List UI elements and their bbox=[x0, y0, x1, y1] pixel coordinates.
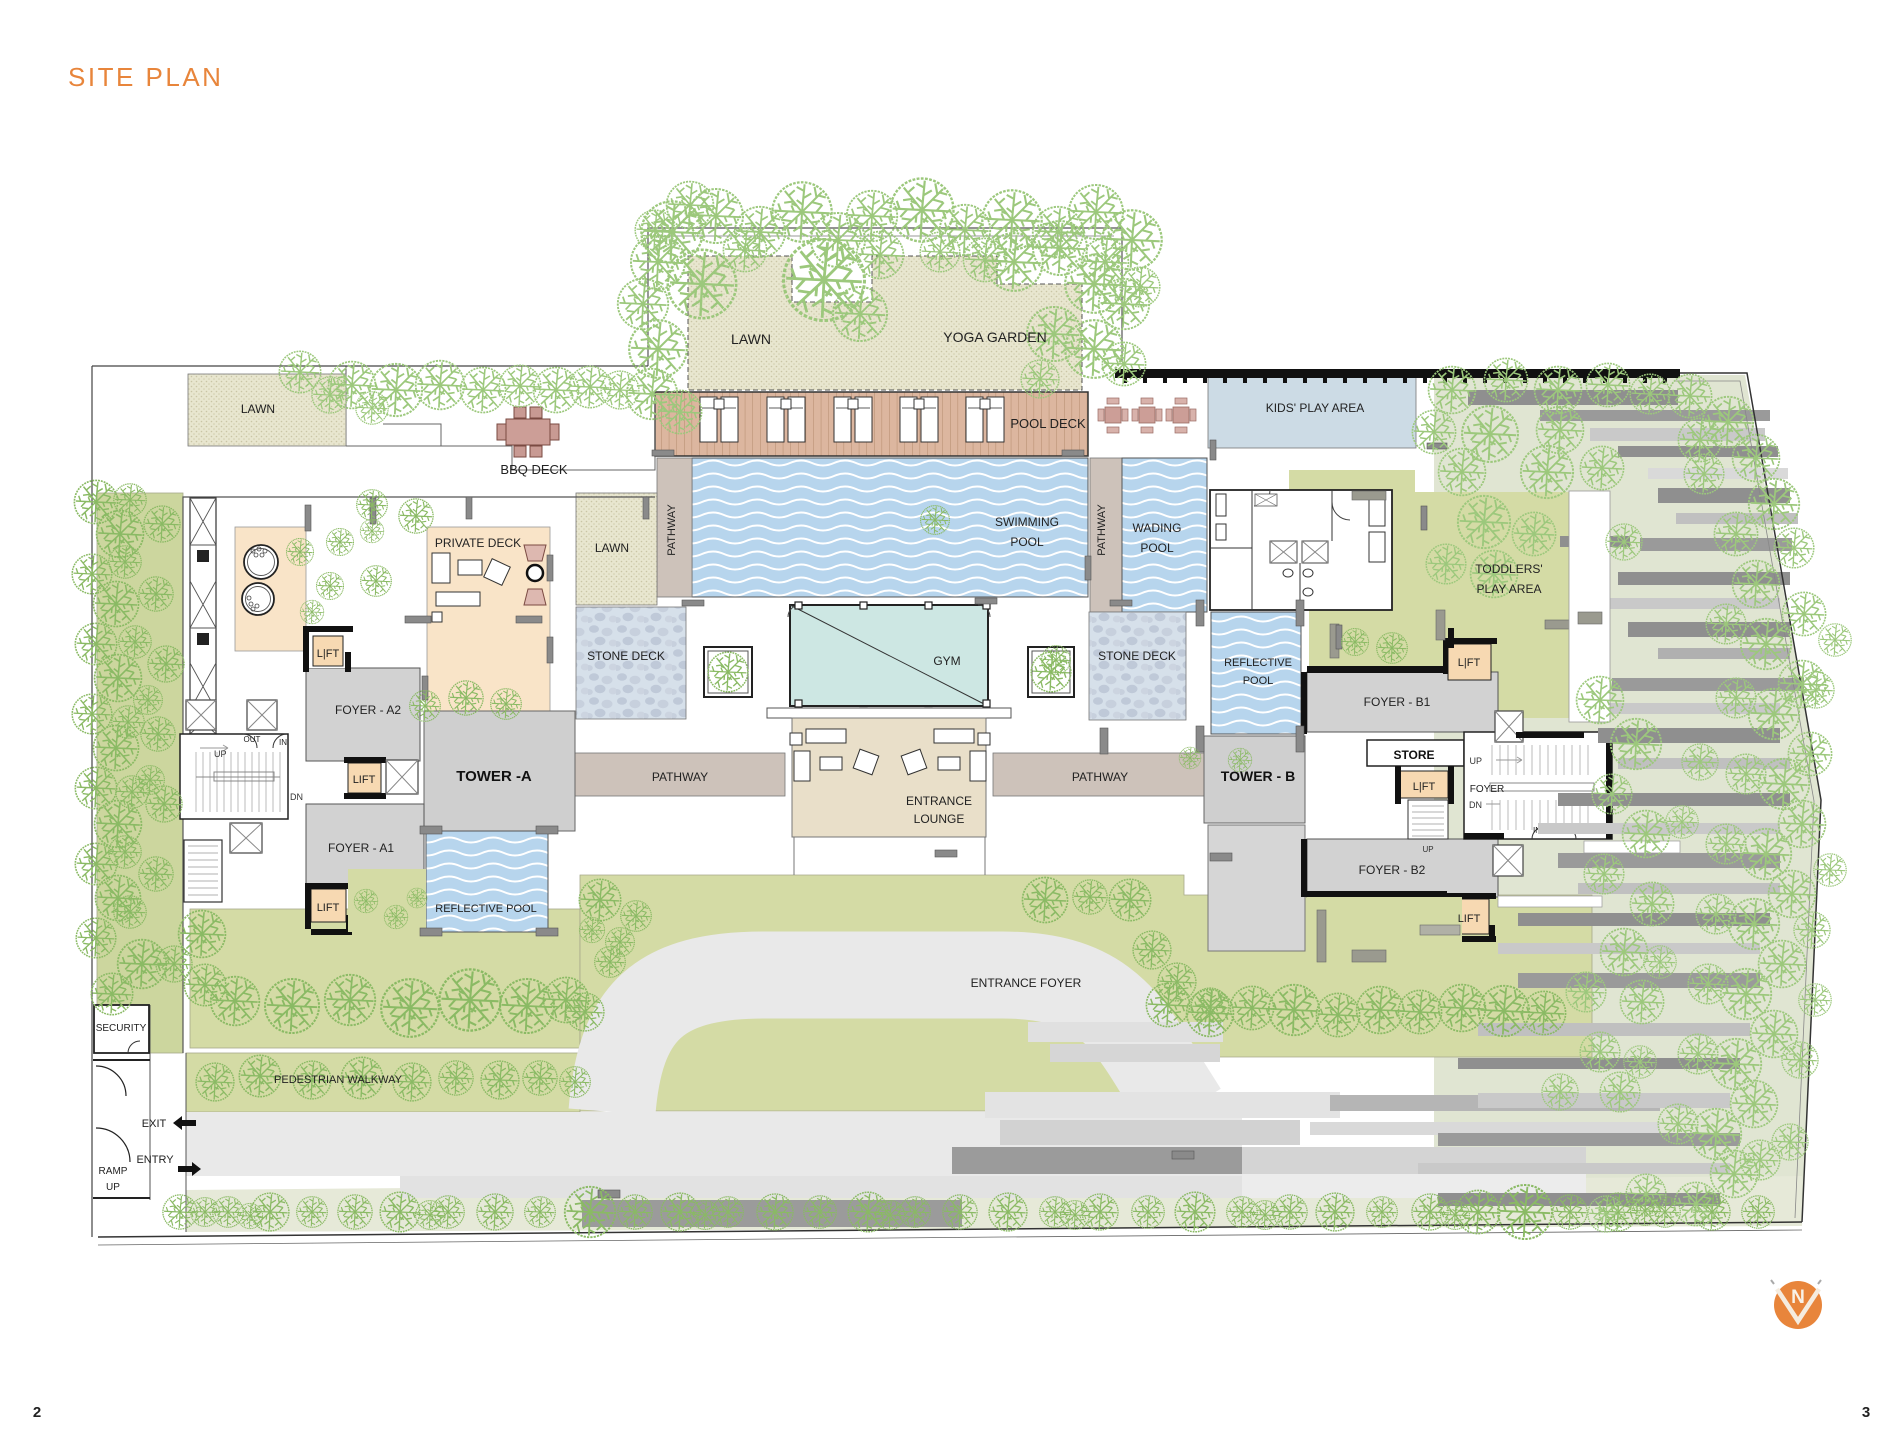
svg-text:REFLECTIVE: REFLECTIVE bbox=[1224, 657, 1292, 669]
svg-text:BBQ DECK: BBQ DECK bbox=[500, 462, 568, 477]
svg-text:ENTRANCE: ENTRANCE bbox=[906, 794, 972, 808]
svg-text:GYM: GYM bbox=[933, 654, 960, 668]
svg-text:OUT: OUT bbox=[244, 735, 261, 744]
svg-text:EXIT: EXIT bbox=[142, 1118, 167, 1130]
svg-text:FOYER - B2: FOYER - B2 bbox=[1359, 863, 1426, 877]
svg-text:RAMP: RAMP bbox=[99, 1166, 128, 1177]
svg-text:TODDLERS': TODDLERS' bbox=[1475, 562, 1542, 576]
svg-text:LAWN: LAWN bbox=[731, 331, 771, 347]
svg-text:DN: DN bbox=[1469, 800, 1482, 810]
svg-text:ENTRANCE FOYER: ENTRANCE FOYER bbox=[971, 976, 1082, 990]
svg-text:LAWN: LAWN bbox=[595, 541, 629, 555]
svg-text:SWIMMING: SWIMMING bbox=[995, 515, 1059, 529]
svg-text:FOYER - B1: FOYER - B1 bbox=[1364, 695, 1431, 709]
svg-text:IN: IN bbox=[279, 738, 287, 747]
svg-text:ENTRY: ENTRY bbox=[136, 1154, 174, 1166]
svg-text:SECURITY: SECURITY bbox=[96, 1023, 147, 1034]
svg-text:POOL: POOL bbox=[1243, 675, 1274, 687]
svg-text:TOWER -A: TOWER -A bbox=[456, 768, 532, 785]
svg-text:LIFT: LIFT bbox=[1458, 913, 1481, 925]
svg-text:PRIVATE DECK: PRIVATE DECK bbox=[435, 536, 521, 550]
svg-text:TOWER - B: TOWER - B bbox=[1221, 768, 1295, 784]
svg-text:STONE DECK: STONE DECK bbox=[1098, 649, 1176, 663]
svg-text:N: N bbox=[1791, 1287, 1805, 1308]
svg-text:2: 2 bbox=[33, 1404, 41, 1421]
svg-text:L|FT: L|FT bbox=[1458, 657, 1481, 669]
svg-text:L|FT: L|FT bbox=[1413, 781, 1436, 793]
svg-text:UP: UP bbox=[214, 749, 227, 759]
svg-text:POOL: POOL bbox=[1140, 541, 1174, 555]
svg-text:POOL DECK: POOL DECK bbox=[1010, 416, 1086, 431]
svg-text:PATHWAY: PATHWAY bbox=[1072, 770, 1128, 784]
svg-text:REFLECTIVE POOL: REFLECTIVE POOL bbox=[435, 903, 536, 915]
svg-text:LOUNGE: LOUNGE bbox=[914, 812, 965, 826]
svg-text:FOYER - A1: FOYER - A1 bbox=[328, 841, 394, 855]
svg-text:WADING: WADING bbox=[1133, 521, 1182, 535]
svg-text:UP: UP bbox=[1422, 845, 1433, 854]
svg-text:YOGA GARDEN: YOGA GARDEN bbox=[943, 329, 1046, 345]
svg-text:LAWN: LAWN bbox=[241, 402, 275, 416]
svg-text:LIFT: LIFT bbox=[353, 774, 376, 786]
svg-text:PATHWAY: PATHWAY bbox=[1096, 504, 1108, 556]
svg-text:3: 3 bbox=[1862, 1404, 1870, 1421]
svg-text:UP: UP bbox=[1469, 756, 1482, 766]
svg-text:STONE DECK: STONE DECK bbox=[587, 649, 665, 663]
svg-text:FOYER: FOYER bbox=[1470, 784, 1504, 795]
svg-text:LIFT: LIFT bbox=[317, 902, 340, 914]
svg-text:FOYER - A2: FOYER - A2 bbox=[335, 703, 401, 717]
svg-text:PATHWAY: PATHWAY bbox=[666, 504, 678, 556]
svg-text:PLAY AREA: PLAY AREA bbox=[1477, 582, 1542, 596]
svg-text:PEDESTRIAN WALKWAY: PEDESTRIAN WALKWAY bbox=[274, 1074, 403, 1086]
svg-text:STORE: STORE bbox=[1393, 748, 1434, 762]
svg-text:L|FT: L|FT bbox=[317, 648, 340, 660]
svg-text:KIDS' PLAY AREA: KIDS' PLAY AREA bbox=[1266, 401, 1365, 415]
svg-text:PATHWAY: PATHWAY bbox=[652, 770, 708, 784]
svg-text:DN: DN bbox=[290, 792, 303, 802]
svg-text:UP: UP bbox=[106, 1182, 120, 1193]
svg-text:SITE PLAN: SITE PLAN bbox=[68, 62, 223, 92]
svg-text:POOL: POOL bbox=[1010, 535, 1044, 549]
